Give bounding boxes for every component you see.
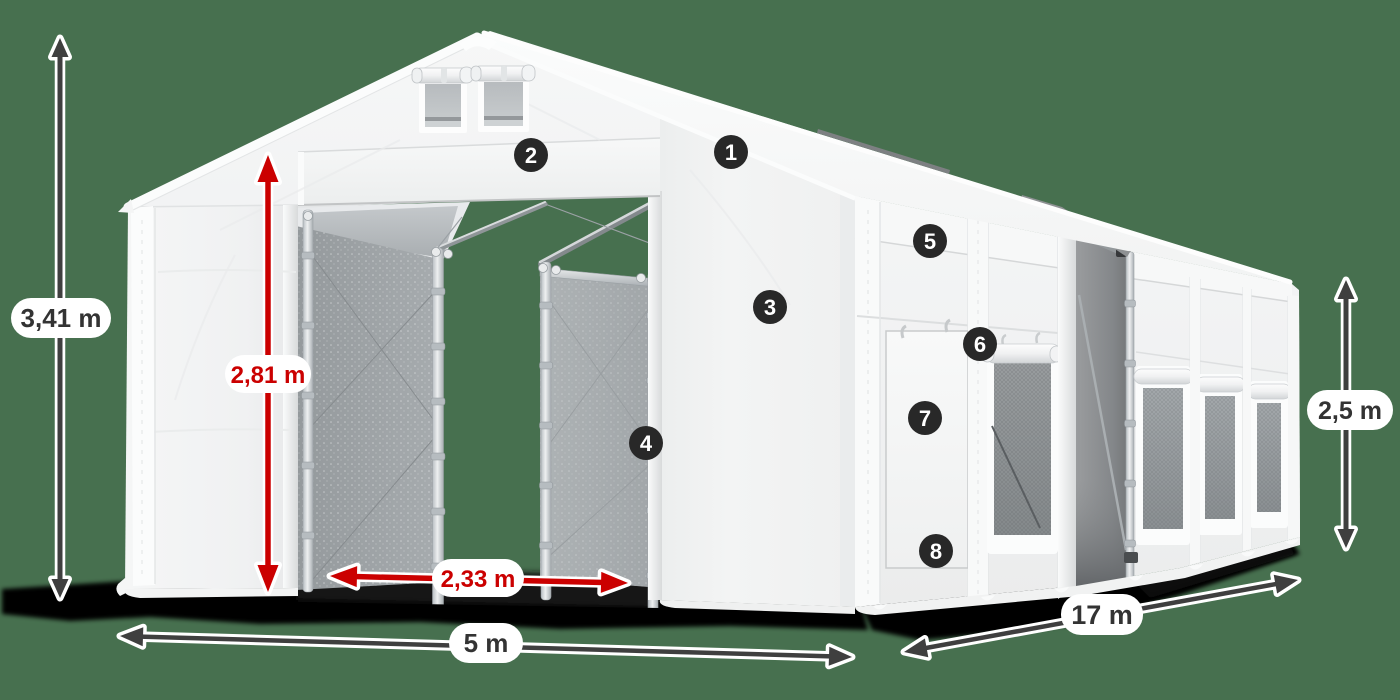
svg-text:2,5 m: 2,5 m	[1318, 397, 1382, 425]
svg-text:7: 7	[919, 406, 931, 431]
svg-text:2,81 m: 2,81 m	[231, 362, 306, 389]
svg-text:4: 4	[640, 431, 653, 456]
svg-text:5: 5	[924, 229, 936, 254]
svg-text:5 m: 5 m	[464, 628, 509, 658]
svg-text:3: 3	[764, 295, 776, 320]
svg-text:6: 6	[974, 332, 986, 357]
svg-text:1: 1	[725, 140, 737, 165]
svg-text:17 m: 17 m	[1071, 600, 1133, 630]
svg-text:3,41 m: 3,41 m	[21, 303, 102, 333]
svg-text:2,33 m: 2,33 m	[441, 566, 516, 593]
svg-text:2: 2	[525, 143, 537, 168]
svg-text:8: 8	[930, 539, 942, 564]
